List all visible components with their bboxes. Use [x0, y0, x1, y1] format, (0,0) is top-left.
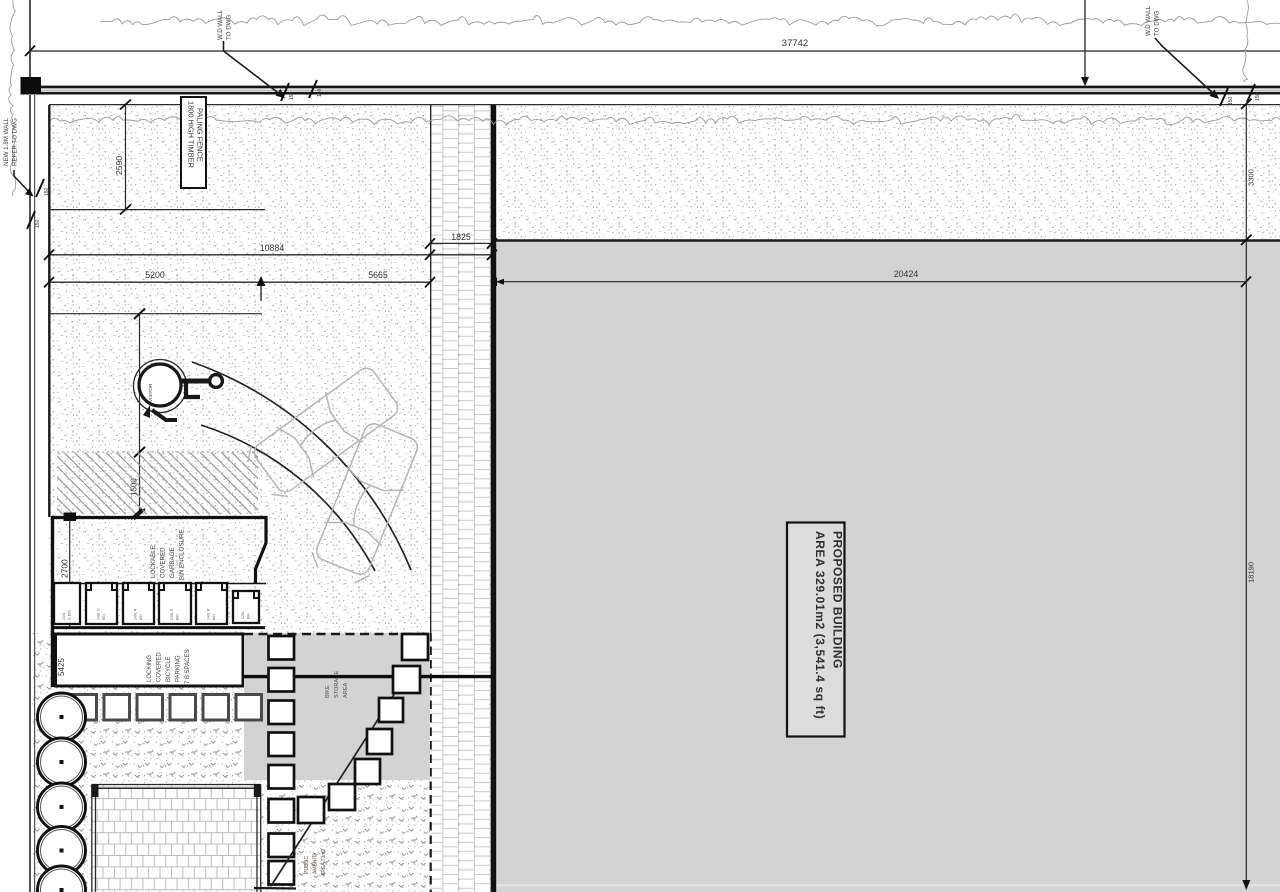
svg-text:AREA 73m2: AREA 73m2 [321, 849, 327, 876]
svg-text:BIN: BIN [176, 614, 180, 620]
svg-text:120L: 120L [241, 611, 245, 619]
svg-text:G.BIN: G.BIN [68, 610, 72, 620]
svg-text:W.D WALL: W.D WALL [217, 9, 224, 40]
svg-text:5200: 5200 [145, 270, 165, 280]
svg-text:BIKE: BIKE [325, 685, 331, 698]
svg-text:BIN ENCLOSURE: BIN ENCLOSURE [179, 529, 186, 580]
svg-text:STORAGE: STORAGE [334, 670, 340, 698]
svg-text:3300: 3300 [1247, 169, 1256, 186]
svg-text:10884: 10884 [260, 243, 285, 253]
svg-text:AREA 329.01m2 (3,541.4 sq ft): AREA 329.01m2 (3,541.4 sq ft) [813, 531, 827, 719]
svg-text:5665: 5665 [368, 270, 388, 280]
svg-text:GARBAGE: GARBAGE [169, 547, 176, 578]
svg-text:PUBLIC: PUBLIC [304, 856, 310, 874]
svg-text:37742: 37742 [782, 38, 808, 49]
svg-text:240L R: 240L R [134, 608, 138, 620]
svg-text:BIN: BIN [212, 614, 216, 620]
svg-text:5425: 5425 [57, 658, 66, 676]
svg-text:150: 150 [1255, 92, 1261, 101]
svg-text:18190: 18190 [1247, 562, 1256, 583]
svg-text:BIN: BIN [102, 614, 106, 620]
svg-text:240L R: 240L R [170, 608, 174, 620]
svg-text:REFER TO DWG: REFER TO DWG [12, 118, 19, 166]
svg-text:LOCKING: LOCKING [147, 655, 153, 682]
svg-text:2700: 2700 [60, 559, 70, 578]
svg-text:BIN: BIN [247, 613, 251, 619]
svg-text:COVERED: COVERED [160, 547, 167, 578]
svg-text:AREA: AREA [343, 682, 349, 698]
svg-text:PALING FENCE: PALING FENCE [196, 108, 205, 162]
svg-text:COVERED: COVERED [157, 652, 163, 682]
svg-text:20424: 20424 [894, 269, 919, 279]
svg-text:150: 150 [289, 91, 295, 100]
svg-text:1800 HIGH TIMBER: 1800 HIGH TIMBER [187, 101, 196, 168]
svg-text:150: 150 [317, 88, 323, 97]
svg-text:PROPOSED BUILDING: PROPOSED BUILDING [831, 531, 845, 669]
svg-text:PARKING: PARKING [176, 655, 182, 682]
svg-text:1825: 1825 [451, 232, 471, 242]
svg-text:TO DWG: TO DWG [1154, 10, 1161, 36]
svg-text:LOCKABLE: LOCKABLE [150, 545, 157, 578]
svg-text:150: 150 [1228, 96, 1234, 105]
svg-text:AMENITY: AMENITY [313, 851, 319, 874]
svg-text:240L G: 240L G [97, 608, 101, 620]
svg-text:240L R: 240L R [207, 608, 211, 620]
svg-text:150: 150 [44, 187, 50, 196]
svg-text:240L: 240L [62, 612, 66, 620]
svg-text:150: 150 [35, 219, 41, 228]
svg-text:7 B SPACES: 7 B SPACES [185, 649, 191, 684]
svg-text:NEW 1.8M WALL: NEW 1.8M WALL [3, 117, 10, 166]
svg-text:W.D WALL: W.D WALL [1145, 5, 1152, 36]
svg-text:VISITOR: VISITOR [148, 383, 153, 402]
svg-text:TO DWG: TO DWG [226, 14, 233, 40]
svg-text:BICYCLE: BICYCLE [166, 656, 172, 682]
svg-text:2590: 2590 [114, 156, 124, 175]
svg-text:BIN: BIN [139, 614, 143, 620]
